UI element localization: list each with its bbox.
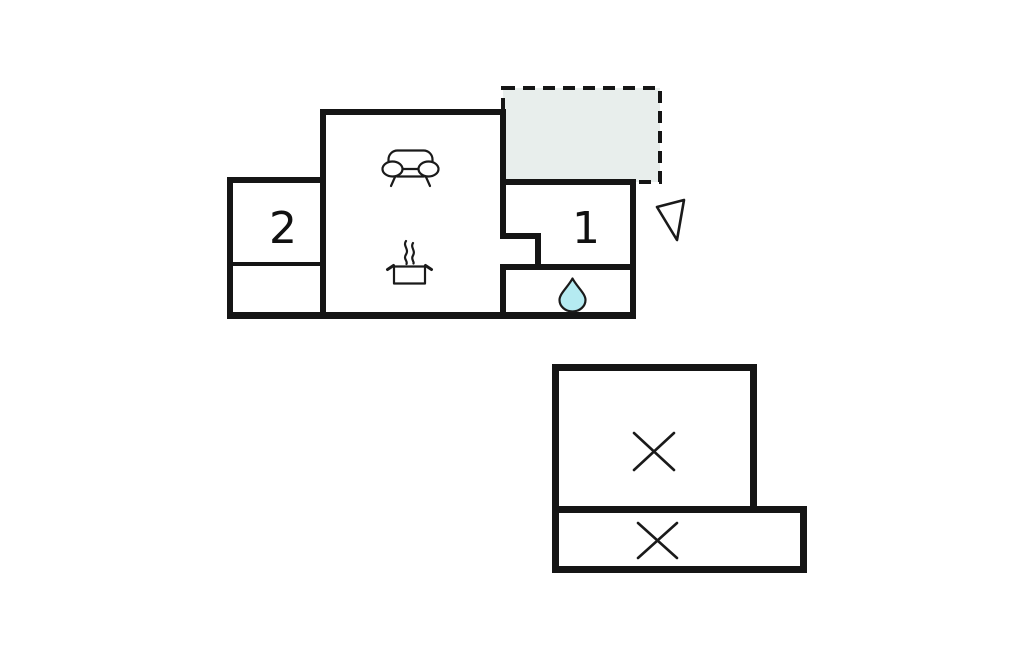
annex-building-plan [552,364,807,573]
sofa-icon [383,151,439,187]
wall-living-right [500,109,506,239]
pot-body [394,267,425,284]
main-building-plan: 2 1 [227,88,684,319]
annex-wall-bottom [552,566,807,573]
annex-wall-right-upper [750,364,757,513]
floor-plan-drawing: 2 1 [0,0,1024,652]
room-label-2: 2 [269,203,297,254]
sofa-legs [391,177,430,186]
wall-room1-step-horizontal [500,233,541,239]
terrace-area [503,88,660,182]
water-drop-icon [560,279,586,312]
annex-wall-left [552,364,559,573]
wall-room1-top [500,179,636,185]
stove-icon [388,241,432,284]
wall-living-left [320,109,326,318]
cross-icon [634,433,674,470]
wall-room2-divider [227,262,326,266]
floor-plan-canvas: 2 1 [0,0,1024,652]
wall-bathroom-left [500,264,506,318]
wall-bathroom-top [500,264,636,270]
cross-mark-upper [634,433,674,470]
north-arrow-icon [657,200,684,240]
wall-outer-bottom [227,312,636,319]
steam-line-left [405,241,407,264]
sofa-arm-right [419,162,439,177]
steam-line-right [412,243,414,264]
wall-outer-right [630,179,636,318]
annex-wall-right-lower [800,506,807,573]
wall-living-top [320,109,506,115]
annex-wall-top [552,364,757,371]
room-label-1: 1 [572,203,600,254]
wall-outer-left [227,177,233,318]
cross-icon [638,523,677,558]
cross-mark-lower [638,523,677,558]
annex-wall-divider [552,506,807,513]
sofa-arm-left [383,162,403,177]
wall-room2-top [227,177,326,183]
